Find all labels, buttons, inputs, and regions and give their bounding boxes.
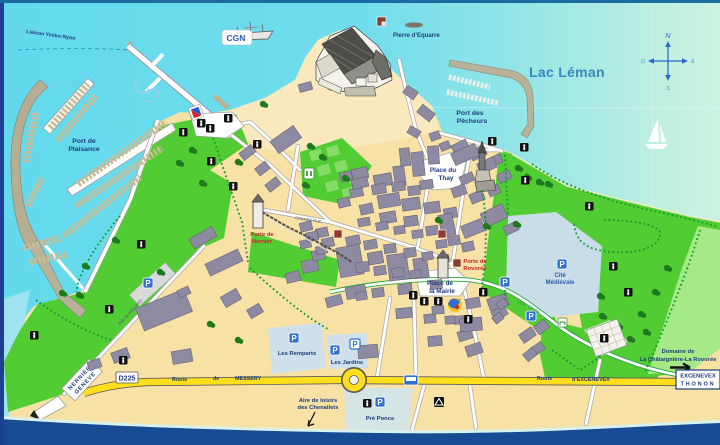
svg-text:de: de [213, 376, 219, 382]
svg-text:P: P [332, 346, 338, 355]
svg-text:P: P [291, 334, 297, 343]
svg-text:THONON: THONON [680, 382, 715, 388]
svg-text:Pierre d’Equarre: Pierre d’Equarre [393, 33, 440, 39]
svg-text:Aire de loisirs: Aire de loisirs [299, 398, 337, 404]
svg-text:Thay: Thay [439, 175, 454, 182]
svg-text:Porte de: Porte de [250, 232, 274, 238]
svg-text:Nernier: Nernier [252, 239, 273, 245]
svg-text:La Châtaignière-La Rovorée: La Châtaignière-La Rovorée [640, 357, 718, 363]
svg-text:P: P [502, 278, 508, 287]
svg-text:Route: Route [537, 376, 552, 382]
svg-text:Porte de: Porte de [463, 259, 487, 265]
svg-text:Cité: Cité [554, 273, 566, 279]
svg-text:P: P [377, 398, 383, 407]
svg-text:CGN: CGN [227, 33, 246, 43]
svg-text:Médiévale: Médiévale [546, 280, 575, 286]
svg-text:Route: Route [172, 377, 187, 383]
svg-text:Les Remparts: Les Remparts [278, 351, 316, 357]
svg-text:Port de: Port de [72, 138, 96, 145]
svg-text:Lac Léman: Lac Léman [529, 64, 605, 80]
svg-text:Pré Ponce: Pré Ponce [366, 416, 395, 422]
svg-text:N: N [665, 31, 671, 40]
svg-text:Place de: Place de [427, 280, 453, 287]
svg-text:P: P [145, 279, 151, 288]
svg-text:MESSERY: MESSERY [235, 376, 262, 382]
svg-text:D225: D225 [119, 376, 136, 383]
svg-text:Rovorée: Rovorée [463, 266, 487, 272]
svg-text:O: O [641, 59, 645, 65]
svg-text:Domaine de: Domaine de [662, 349, 696, 355]
svg-text:Port des: Port des [456, 110, 483, 117]
svg-text:Pêcheurs: Pêcheurs [457, 118, 488, 125]
svg-text:Plaisance: Plaisance [68, 146, 100, 153]
svg-text:d’EXCENEVEX: d’EXCENEVEX [572, 377, 610, 383]
svg-text:des Chenallets: des Chenallets [298, 405, 339, 411]
svg-text:Place du: Place du [430, 167, 456, 174]
svg-text:EXCENEVEX: EXCENEVEX [680, 374, 716, 380]
svg-text:la Mairie: la Mairie [429, 288, 455, 295]
svg-text:P: P [352, 340, 358, 349]
svg-text:Les Jardins: Les Jardins [331, 360, 363, 366]
svg-text:P: P [559, 260, 565, 269]
